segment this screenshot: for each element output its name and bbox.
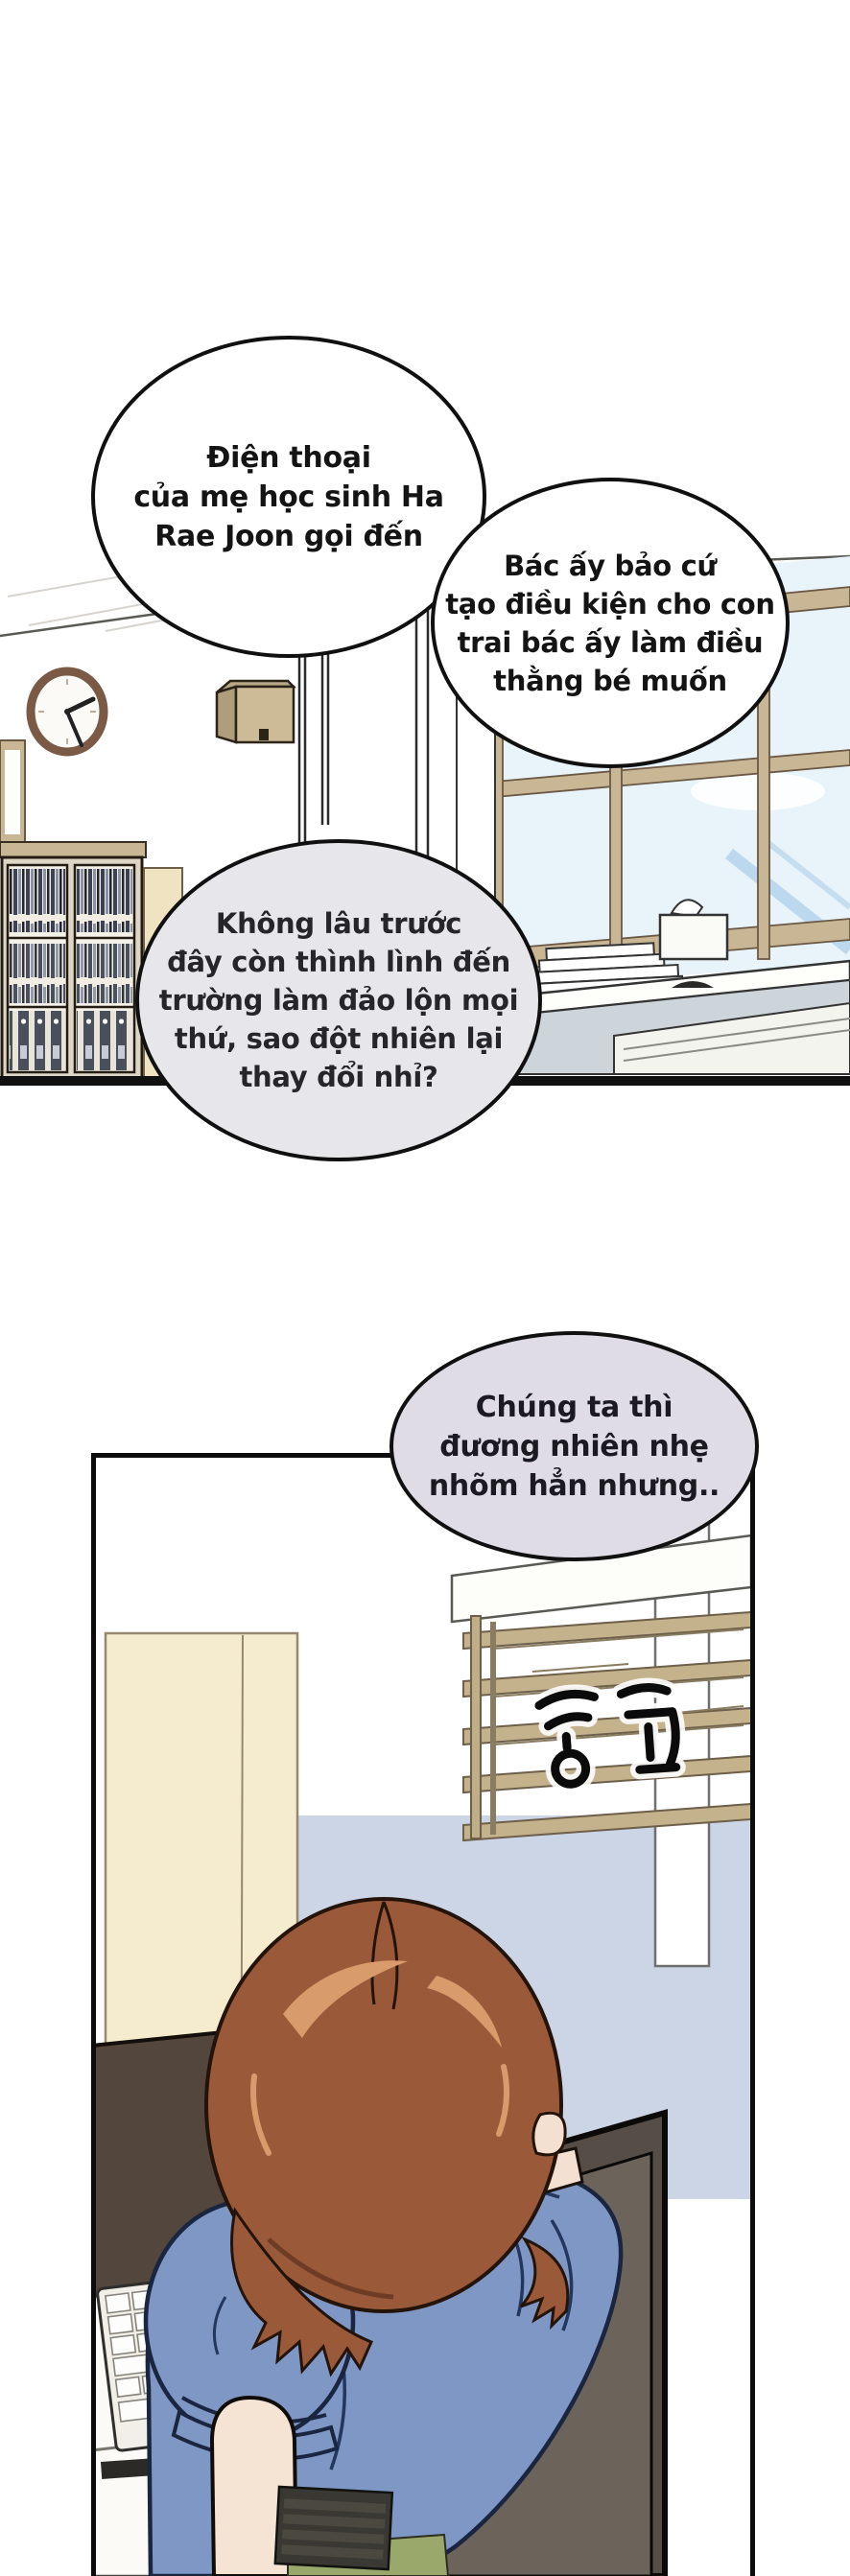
bubble-text-line: Chúng ta thì bbox=[476, 1388, 673, 1427]
bookshelf-with-books bbox=[0, 842, 146, 1080]
speech-bubble-2: Bác ấy bảo cứ tạo điều kiện cho con trai… bbox=[431, 478, 790, 768]
bubble-text-line: Không lâu trước bbox=[216, 904, 461, 943]
bubble-text-line: của mẹ học sinh Ha bbox=[133, 478, 443, 517]
bubble-text-line: trai bác ấy làm điều bbox=[458, 623, 764, 662]
bubble-text-line: đương nhiên nhẹ bbox=[439, 1427, 708, 1466]
wall-speaker bbox=[217, 681, 294, 742]
speech-bubble-1: Điện thoại của mẹ học sinh Ha Rae Joon g… bbox=[91, 336, 486, 658]
dark-keyboard bbox=[275, 2487, 392, 2569]
bubble-text-line: nhõm hẳn nhưng.. bbox=[429, 1466, 720, 1506]
bubble-text-line: Điện thoại bbox=[206, 438, 370, 478]
bubble-text-line: thứ, sao đột nhiên lại bbox=[175, 1019, 503, 1058]
bubble-text-line: thằng bé muốn bbox=[493, 662, 727, 700]
bubble-text-line: Bác ấy bảo cứ bbox=[504, 547, 717, 585]
bubble-text-line: thay đổi nhỉ? bbox=[239, 1058, 437, 1096]
wall-clock bbox=[31, 671, 104, 752]
bubble-text-line: đây còn thình lình đến bbox=[167, 943, 510, 981]
comic-page: Điện thoại của mẹ học sinh Ha Rae Joon g… bbox=[0, 0, 850, 2576]
speech-bubble-4: Chúng ta thì đương nhiên nhẹ nhõm hẳn nh… bbox=[390, 1331, 759, 1561]
desk-scene-panel bbox=[91, 1453, 755, 2576]
ear bbox=[533, 2113, 565, 2155]
speech-bubble-3: Không lâu trước đây còn thình lình đến t… bbox=[135, 839, 542, 1161]
bubble-text-line: Rae Joon gọi đến bbox=[154, 517, 423, 556]
left-door-frame bbox=[0, 740, 25, 844]
bubble-text-line: trường làm đảo lộn mọi bbox=[159, 981, 519, 1019]
binder-shelf bbox=[10, 1011, 65, 1070]
bubble-text-line: tạo điều kiện cho con bbox=[445, 585, 775, 623]
